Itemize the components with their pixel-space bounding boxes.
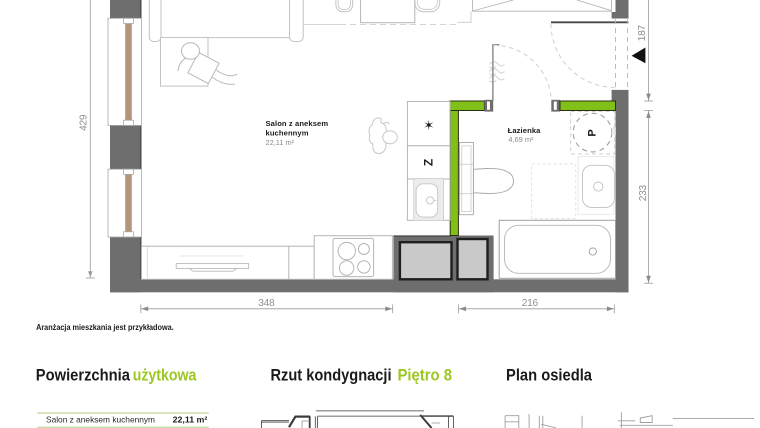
svg-text:Rzut kondygnacji: Rzut kondygnacji [271,366,392,385]
svg-text:233: 233 [638,185,649,202]
svg-text:4,69 m²: 4,69 m² [508,135,534,144]
svg-text:Powierzchnia: Powierzchnia [36,366,131,385]
svg-text:216: 216 [522,298,539,309]
svg-text:22,11 m²: 22,11 m² [266,138,295,147]
svg-text:348: 348 [258,298,275,309]
svg-text:Aranżacja mieszkania jest przy: Aranżacja mieszkania jest przykładowa. [36,322,174,332]
svg-text:Salon z aneksem kuchennym: Salon z aneksem kuchennym [46,414,155,424]
svg-text:Z: Z [421,159,435,166]
svg-text:Plan osiedla: Plan osiedla [506,366,593,385]
svg-text:Łazienka: Łazienka [508,126,542,135]
svg-text:kuchennym: kuchennym [266,129,309,138]
svg-text:22,11 m²: 22,11 m² [173,414,208,424]
svg-text:Piętro 8: Piętro 8 [398,366,453,385]
svg-text:429: 429 [79,114,90,131]
svg-text:Salon z aneksem: Salon z aneksem [266,119,329,128]
svg-text:użytkowa: użytkowa [133,366,197,385]
svg-text:187: 187 [637,25,648,42]
svg-text:P: P [587,129,599,136]
